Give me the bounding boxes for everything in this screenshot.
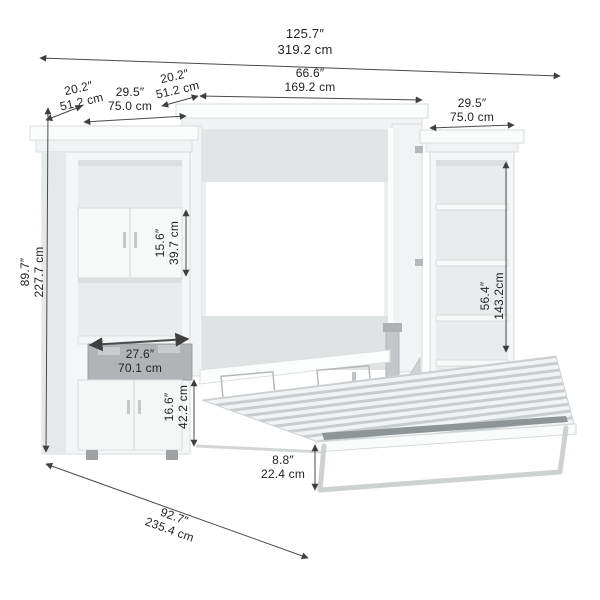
bookcase-shelf	[436, 204, 508, 210]
left-tower-crown	[30, 126, 198, 140]
upper-open-shelf	[78, 160, 182, 208]
dim-pullout-shelf-width: 27.6″ 70.1 cm	[118, 347, 162, 375]
left-tower-side-panel	[42, 152, 66, 454]
lower-cabinet-handle	[138, 400, 141, 414]
bed-cabinet-interior-top-shadow	[202, 130, 388, 182]
dim-shelf-section-height-cm: 143.2cm	[492, 272, 506, 319]
dim-shelf-section-height: 56.4″ 143.2cm	[478, 272, 506, 319]
dim-overall-height-cm: 227.7 cm	[32, 247, 46, 298]
door-hinge	[415, 146, 423, 153]
dim-lower-cabinet-height-cm: 42.2 cm	[176, 385, 190, 429]
dim-left-tower-width: 29.5″ 75.0 cm	[108, 85, 152, 113]
bookcase-shelf	[436, 260, 508, 266]
dim-shelf-section-height-inches: 56.4″	[478, 272, 492, 319]
bed-cabinet-back-panel	[206, 182, 384, 316]
dim-pullout-shelf-width-cm: 70.1 cm	[118, 361, 162, 375]
bed-cabinet-crown-band	[182, 118, 422, 130]
middle-open-niche	[78, 278, 182, 336]
dim-overall-height-inches: 89.7″	[18, 247, 32, 298]
dim-cabinet-height-inches: 15.6″	[153, 221, 167, 265]
middle-niche-shadow	[78, 278, 182, 283]
dim-bed-cabinet-width: 66.6″ 169.2 cm	[285, 66, 336, 94]
dim-right-tower-width-inches: 29.5″	[450, 96, 494, 110]
lower-cabinet-handle	[127, 400, 130, 414]
bed-cabinet-crown	[176, 104, 428, 118]
door-hinge	[415, 259, 423, 266]
dim-overall-width-inches: 125.7″	[277, 26, 332, 42]
dim-overall-width: 125.7″ 319.2 cm	[277, 26, 332, 58]
dim-line-right-width	[430, 125, 514, 128]
dim-bed-frame-height: 8.8″ 22.4 cm	[261, 453, 305, 481]
left-tower-crown-band	[36, 140, 192, 152]
dim-right-tower-width-cm: 75.0 cm	[450, 110, 494, 124]
dim-lower-cabinet-height-inches: 16.6″	[162, 385, 176, 429]
lift-piston-cap	[383, 323, 402, 332]
pullout-bracket	[98, 347, 120, 355]
cabinet-handle-left	[123, 232, 126, 248]
dim-overall-height: 89.7″ 227.7 cm	[18, 247, 46, 298]
right-tower-top-shadow	[436, 160, 508, 166]
cabinet-foot	[166, 450, 178, 460]
dim-pullout-shelf-width-inches: 27.6″	[118, 347, 162, 361]
cabinet-handle-right	[134, 232, 137, 248]
dim-right-tower-width: 29.5″ 75.0 cm	[450, 96, 494, 124]
right-tower-crown-band	[426, 143, 518, 152]
dim-overall-width-cm: 319.2 cm	[277, 42, 332, 58]
dim-bed-frame-height-inches: 8.8″	[261, 453, 305, 467]
dim-left-tower-width-cm: 75.0 cm	[108, 99, 152, 113]
dim-line-left-width	[84, 116, 186, 122]
dim-lower-cabinet-height: 16.6″ 42.2 cm	[162, 385, 190, 429]
cabinet-foot	[86, 450, 98, 460]
right-tower-crown	[420, 130, 524, 143]
dim-bed-cabinet-width-cm: 169.2 cm	[285, 80, 336, 94]
dimension-diagram: 125.7″ 319.2 cm 20.2″ 51.2 cm 29.5″ 75.0…	[0, 0, 600, 600]
dim-line-bed-width	[200, 96, 422, 100]
dim-cabinet-height: 15.6″ 39.7 cm	[153, 221, 181, 265]
upper-open-shelf-shadow	[78, 160, 182, 166]
bed-side-bar	[196, 446, 322, 452]
dim-cabinet-height-cm: 39.7 cm	[167, 221, 181, 265]
dim-bed-cabinet-width-inches: 66.6″	[285, 66, 336, 80]
dim-bed-frame-height-cm: 22.4 cm	[261, 467, 305, 481]
dim-left-tower-width-inches: 29.5″	[108, 85, 152, 99]
